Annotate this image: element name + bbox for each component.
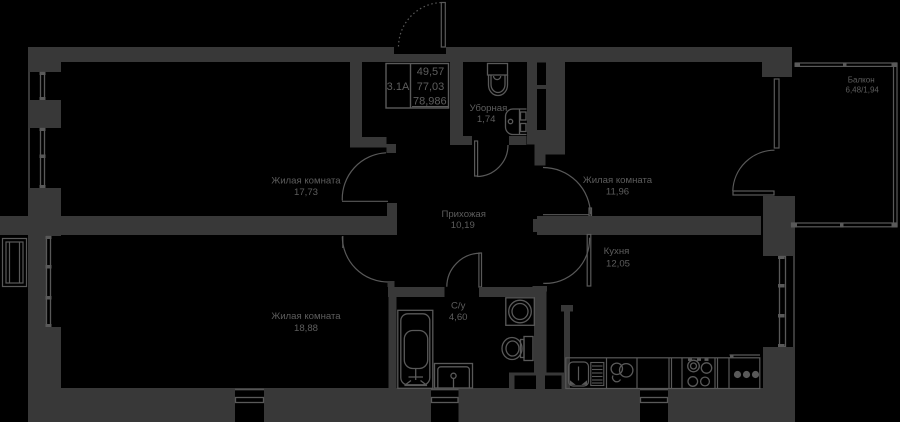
svg-text:18,88: 18,88: [294, 323, 318, 334]
svg-text:Уборная: Уборная: [469, 103, 507, 114]
svg-text:4,60: 4,60: [449, 312, 468, 323]
svg-text:78,986: 78,986: [413, 96, 447, 108]
svg-text:С/у: С/у: [451, 300, 466, 311]
svg-text:77,03: 77,03: [417, 81, 445, 93]
svg-text:3.1А: 3.1А: [387, 81, 410, 93]
svg-text:17,73: 17,73: [294, 187, 318, 198]
svg-text:10,19: 10,19: [451, 220, 475, 231]
svg-text:Жилая комната: Жилая комната: [271, 175, 341, 186]
svg-text:Балкон: Балкон: [848, 76, 875, 85]
svg-text:Жилая комната: Жилая комната: [583, 175, 653, 186]
svg-text:Жилая комната: Жилая комната: [271, 311, 341, 322]
svg-text:Кухня: Кухня: [604, 246, 630, 257]
svg-text:49,57: 49,57: [417, 66, 445, 78]
svg-text:1,74: 1,74: [477, 114, 496, 125]
svg-text:6,48/1,94: 6,48/1,94: [846, 86, 880, 95]
svg-text:12,05: 12,05: [606, 258, 630, 269]
svg-text:11,96: 11,96: [606, 187, 629, 198]
svg-text:Прихожая: Прихожая: [441, 209, 485, 220]
